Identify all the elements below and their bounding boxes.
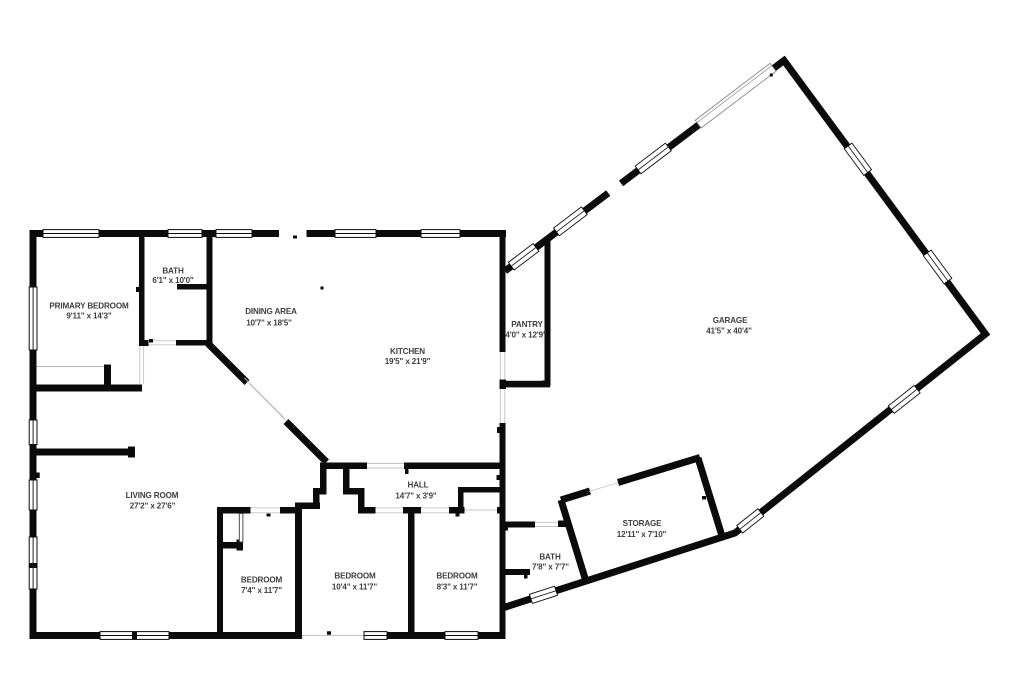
svg-text:10'7" x 18'5": 10'7" x 18'5" [246,319,292,328]
svg-text:19'5" x 21'9": 19'5" x 21'9" [385,357,431,366]
svg-text:GARAGE: GARAGE [713,316,748,325]
svg-text:BEDROOM: BEDROOM [241,576,283,585]
svg-text:7'8" x 7'7": 7'8" x 7'7" [532,563,569,572]
svg-text:BEDROOM: BEDROOM [436,572,478,581]
svg-text:7'4" x 11'7": 7'4" x 11'7" [241,586,282,595]
svg-text:DINING AREA: DINING AREA [245,307,297,316]
svg-text:4'0" x 12'9": 4'0" x 12'9" [505,331,547,340]
svg-text:BATH: BATH [539,553,561,562]
svg-text:14'7" x 3'9": 14'7" x 3'9" [395,492,437,501]
svg-text:HALL: HALL [408,481,429,490]
svg-text:BATH: BATH [162,267,184,276]
svg-text:8'3" x 11'7": 8'3" x 11'7" [437,583,478,592]
svg-text:STORAGE: STORAGE [623,519,663,528]
svg-text:PANTRY: PANTRY [511,320,543,329]
svg-text:9'11" x 14'3": 9'11" x 14'3" [66,312,111,321]
svg-text:BEDROOM: BEDROOM [334,572,376,581]
svg-text:27'2" x 27'6": 27'2" x 27'6" [130,502,176,511]
svg-text:41'5" x 40'4": 41'5" x 40'4" [706,327,752,336]
svg-text:PRIMARY BEDROOM: PRIMARY BEDROOM [49,302,129,311]
svg-text:KITCHEN: KITCHEN [390,347,425,356]
svg-text:LIVING ROOM: LIVING ROOM [126,491,179,500]
svg-text:10'4" x 11'7": 10'4" x 11'7" [332,583,377,592]
svg-text:12'11" x 7'10": 12'11" x 7'10" [617,530,667,539]
svg-text:6'1" x 10'0": 6'1" x 10'0" [152,276,194,285]
